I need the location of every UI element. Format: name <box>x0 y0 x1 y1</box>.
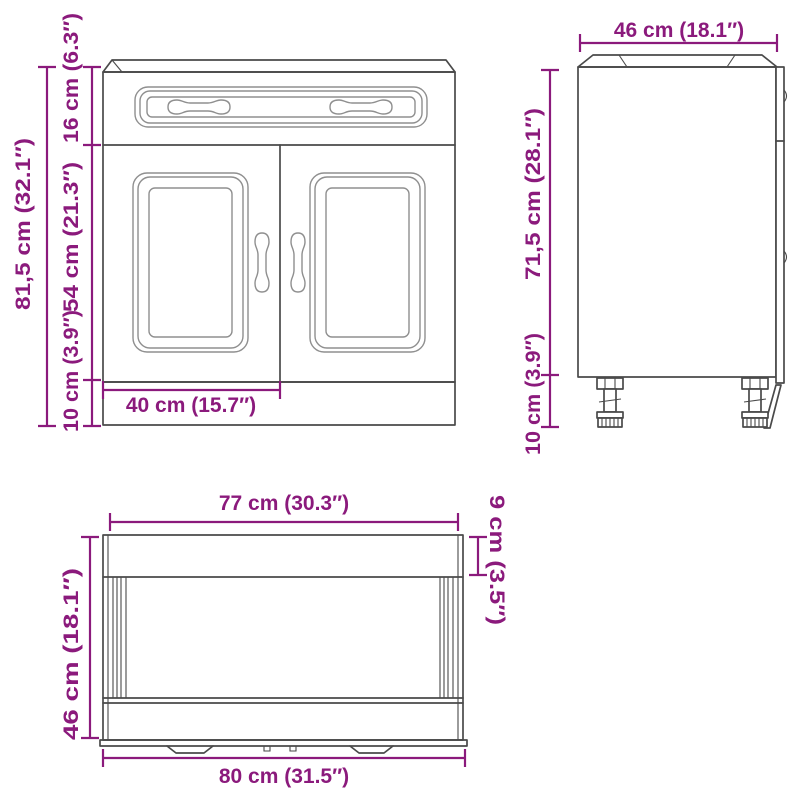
top-dimensions: 77 cm (30.3″) 9 cm (3.5″) 46 cm (18.1″) … <box>60 492 508 788</box>
side-dimensions: 46 cm (18.1″) 71,5 cm (28.1″) 10 cm (3.9… <box>522 19 777 455</box>
top-left-side-panel-lines <box>113 577 126 698</box>
dim-label-legs-height: 10 cm (3.9″) <box>60 310 83 432</box>
dim-label-doors-height: 54 cm (21.3″) <box>60 162 83 312</box>
left-door-panel-mid <box>138 177 243 348</box>
drawer-handle-right <box>330 100 392 114</box>
front-body <box>103 72 455 382</box>
dim-bracket-sections <box>83 67 101 426</box>
dim-label-door-width: 40 cm (15.7″) <box>126 394 256 417</box>
top-front-band-lines <box>103 698 463 703</box>
side-cabinet-drawing <box>578 55 787 428</box>
dim-label-drawer-height: 16 cm (6.3″) <box>60 13 83 143</box>
right-door-panel-mid <box>315 177 420 348</box>
dim-label-body-height: 71,5 cm (28.1″) <box>522 108 545 280</box>
dim-bracket-total-height <box>38 67 56 426</box>
left-door-panel-outer <box>133 173 248 352</box>
front-cabinet-drawing <box>103 60 455 425</box>
front-view: 81,5 cm (32.1″) 16 cm (6.3″) 54 cm (21.3… <box>12 13 455 432</box>
right-door-handle <box>291 233 305 292</box>
top-outline <box>103 535 463 740</box>
drawer-panel-inner <box>147 97 415 117</box>
dim-label-top-depth: 46 cm (18.1″) <box>60 568 83 740</box>
dim-line-top-width <box>110 513 458 531</box>
dim-label-total-height: 81,5 cm (32.1″) <box>12 138 35 310</box>
dimension-drawing: 81,5 cm (32.1″) 16 cm (6.3″) 54 cm (21.3… <box>0 0 800 800</box>
product-dimension-diagram: 81,5 cm (32.1″) 16 cm (6.3″) 54 cm (21.3… <box>0 0 800 800</box>
front-dimensions: 81,5 cm (32.1″) 16 cm (6.3″) 54 cm (21.3… <box>12 13 280 432</box>
dim-label-total-width: 80 cm (31.5″) <box>219 765 349 788</box>
dim-bracket-top-depth <box>81 537 99 738</box>
left-door-panel-inner <box>149 188 232 337</box>
right-door-panel-inner <box>326 188 409 337</box>
top-front-edge-strip <box>100 740 467 746</box>
right-door-panel-outer <box>310 173 425 352</box>
side-front-edge <box>776 67 784 383</box>
drawer-panel-outer <box>135 87 427 127</box>
dim-label-side-legs-height: 10 cm (3.9″) <box>522 333 545 455</box>
dim-label-depth: 46 cm (18.1″) <box>614 19 744 42</box>
side-foot-back <box>597 378 623 427</box>
side-foot-front <box>742 378 768 427</box>
top-right-side-panel-lines <box>440 577 453 698</box>
drawer-panel-mid <box>140 91 422 123</box>
drawer-handle-left <box>168 100 230 114</box>
front-top-surface <box>103 60 455 72</box>
top-handle-left <box>167 746 213 753</box>
top-handle-right <box>350 746 393 753</box>
top-inner-edges <box>108 535 458 740</box>
top-cabinet-drawing <box>100 535 467 753</box>
top-view: 77 cm (30.3″) 9 cm (3.5″) 46 cm (18.1″) … <box>60 492 508 788</box>
left-door-handle <box>255 233 269 292</box>
dim-label-top-width: 77 cm (30.3″) <box>219 492 349 515</box>
side-view: 46 cm (18.1″) 71,5 cm (28.1″) 10 cm (3.9… <box>522 19 787 455</box>
side-top-surface <box>578 55 777 67</box>
dim-label-overhang-depth: 9 cm (3.5″) <box>485 495 508 625</box>
side-body <box>578 67 776 377</box>
dim-bracket-overhang <box>469 537 487 575</box>
